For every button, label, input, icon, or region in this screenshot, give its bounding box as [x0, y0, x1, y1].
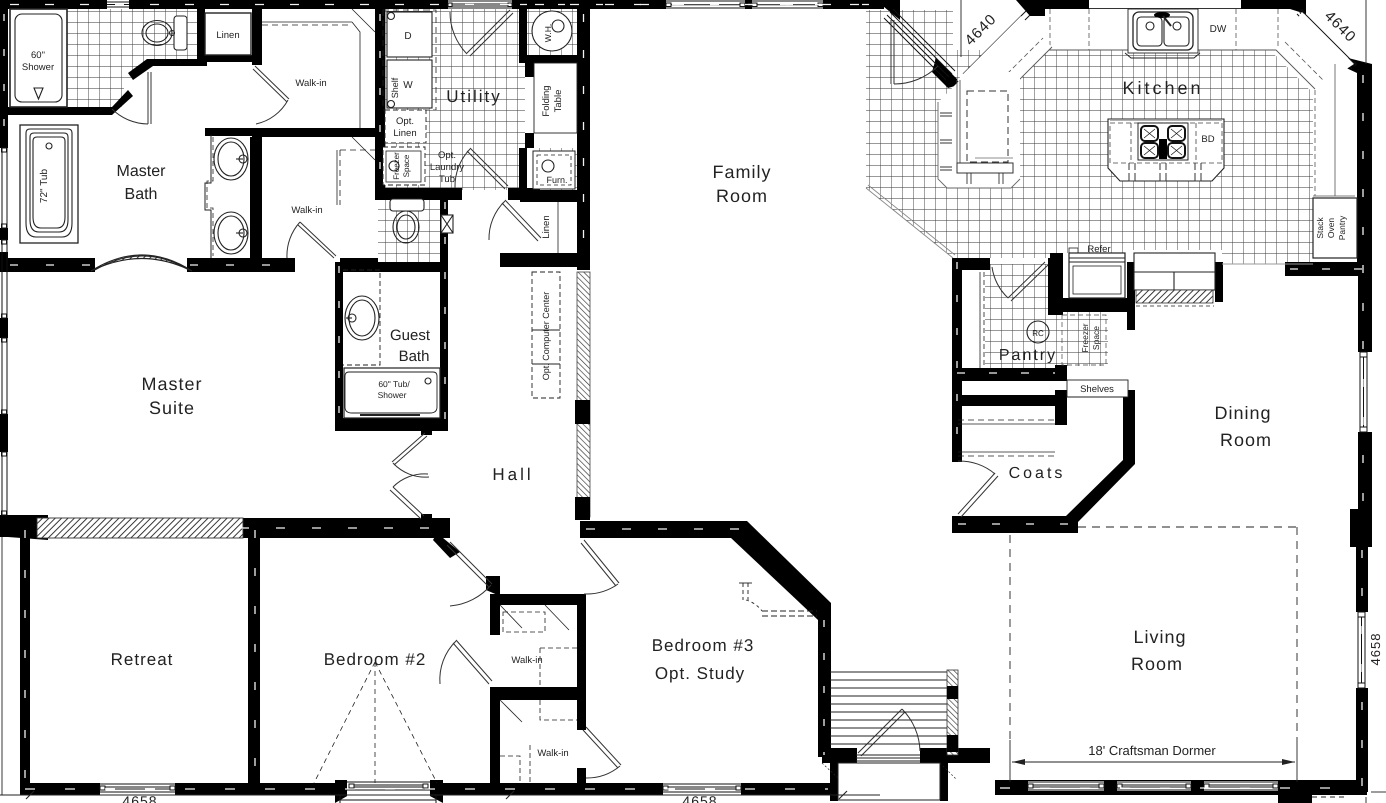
- svg-text:Retreat: Retreat: [111, 650, 174, 669]
- svg-text:Guest: Guest: [390, 327, 431, 344]
- svg-text:Dining: Dining: [1214, 403, 1271, 423]
- svg-text:4658: 4658: [1368, 633, 1383, 666]
- svg-text:Shelf: Shelf: [390, 77, 400, 98]
- svg-text:Walk-in: Walk-in: [295, 78, 326, 89]
- svg-text:Linen: Linen: [393, 128, 416, 139]
- svg-text:Kitchen: Kitchen: [1122, 78, 1203, 98]
- svg-text:Room: Room: [716, 186, 768, 206]
- svg-text:Space: Space: [1091, 326, 1101, 350]
- svg-text:Refer: Refer: [1087, 244, 1110, 255]
- svg-text:4658: 4658: [682, 793, 717, 803]
- svg-text:Oven: Oven: [1326, 218, 1336, 239]
- svg-text:Pantry: Pantry: [1337, 215, 1347, 240]
- svg-text:Furn.: Furn.: [546, 175, 567, 185]
- svg-text:DW: DW: [1210, 24, 1227, 35]
- svg-text:D: D: [404, 31, 411, 42]
- svg-text:W.H.: W.H.: [543, 24, 553, 42]
- svg-text:Coats: Coats: [1009, 465, 1066, 482]
- svg-text:Bedroom #2: Bedroom #2: [324, 650, 427, 669]
- svg-text:Opt. Computer Center: Opt. Computer Center: [541, 292, 551, 381]
- svg-text:Walk-in: Walk-in: [291, 205, 322, 216]
- svg-text:Walk-in: Walk-in: [511, 655, 542, 666]
- svg-text:Folding: Folding: [541, 85, 552, 116]
- svg-text:Shower: Shower: [378, 390, 407, 400]
- svg-text:Hall: Hall: [492, 465, 533, 484]
- svg-text:Room: Room: [1220, 430, 1272, 450]
- svg-text:Family: Family: [713, 162, 772, 182]
- svg-text:60": 60": [31, 50, 45, 61]
- svg-text:Linen: Linen: [216, 30, 239, 41]
- svg-text:60" Tub/: 60" Tub/: [378, 379, 410, 389]
- svg-text:Bath: Bath: [399, 348, 430, 365]
- svg-text:Table: Table: [553, 90, 564, 113]
- svg-text:Bedroom #3: Bedroom #3: [652, 636, 755, 655]
- svg-text:Shelves: Shelves: [1080, 384, 1114, 395]
- svg-text:Pantry: Pantry: [999, 347, 1057, 364]
- svg-text:Walk-in: Walk-in: [537, 748, 568, 759]
- svg-text:72" Tub: 72" Tub: [39, 169, 50, 204]
- svg-text:Living: Living: [1133, 627, 1186, 647]
- svg-text:BD: BD: [1201, 134, 1214, 145]
- svg-text:Opt.: Opt.: [396, 116, 414, 127]
- svg-text:Opt.: Opt.: [438, 150, 456, 161]
- svg-text:Suite: Suite: [149, 398, 195, 418]
- svg-text:Room: Room: [1131, 654, 1183, 674]
- svg-text:Bath: Bath: [125, 186, 158, 203]
- svg-text:4658: 4658: [122, 793, 157, 803]
- svg-text:Linen: Linen: [541, 215, 552, 238]
- svg-text:Master: Master: [117, 163, 167, 180]
- svg-text:Utility: Utility: [446, 87, 502, 106]
- svg-text:Freezer: Freezer: [392, 152, 401, 180]
- svg-text:Stack: Stack: [1315, 217, 1325, 239]
- svg-text:Shower: Shower: [22, 62, 54, 73]
- svg-text:Freezer: Freezer: [1080, 323, 1090, 352]
- svg-text:Laundry: Laundry: [430, 162, 465, 173]
- svg-text:Tub: Tub: [439, 174, 455, 185]
- svg-text:Space: Space: [402, 154, 411, 177]
- svg-text:18' Craftsman Dormer: 18' Craftsman Dormer: [1088, 743, 1216, 758]
- svg-text:W: W: [403, 80, 413, 91]
- svg-text:Master: Master: [141, 374, 202, 394]
- svg-text:RC: RC: [1032, 329, 1044, 338]
- svg-text:Opt. Study: Opt. Study: [655, 664, 745, 683]
